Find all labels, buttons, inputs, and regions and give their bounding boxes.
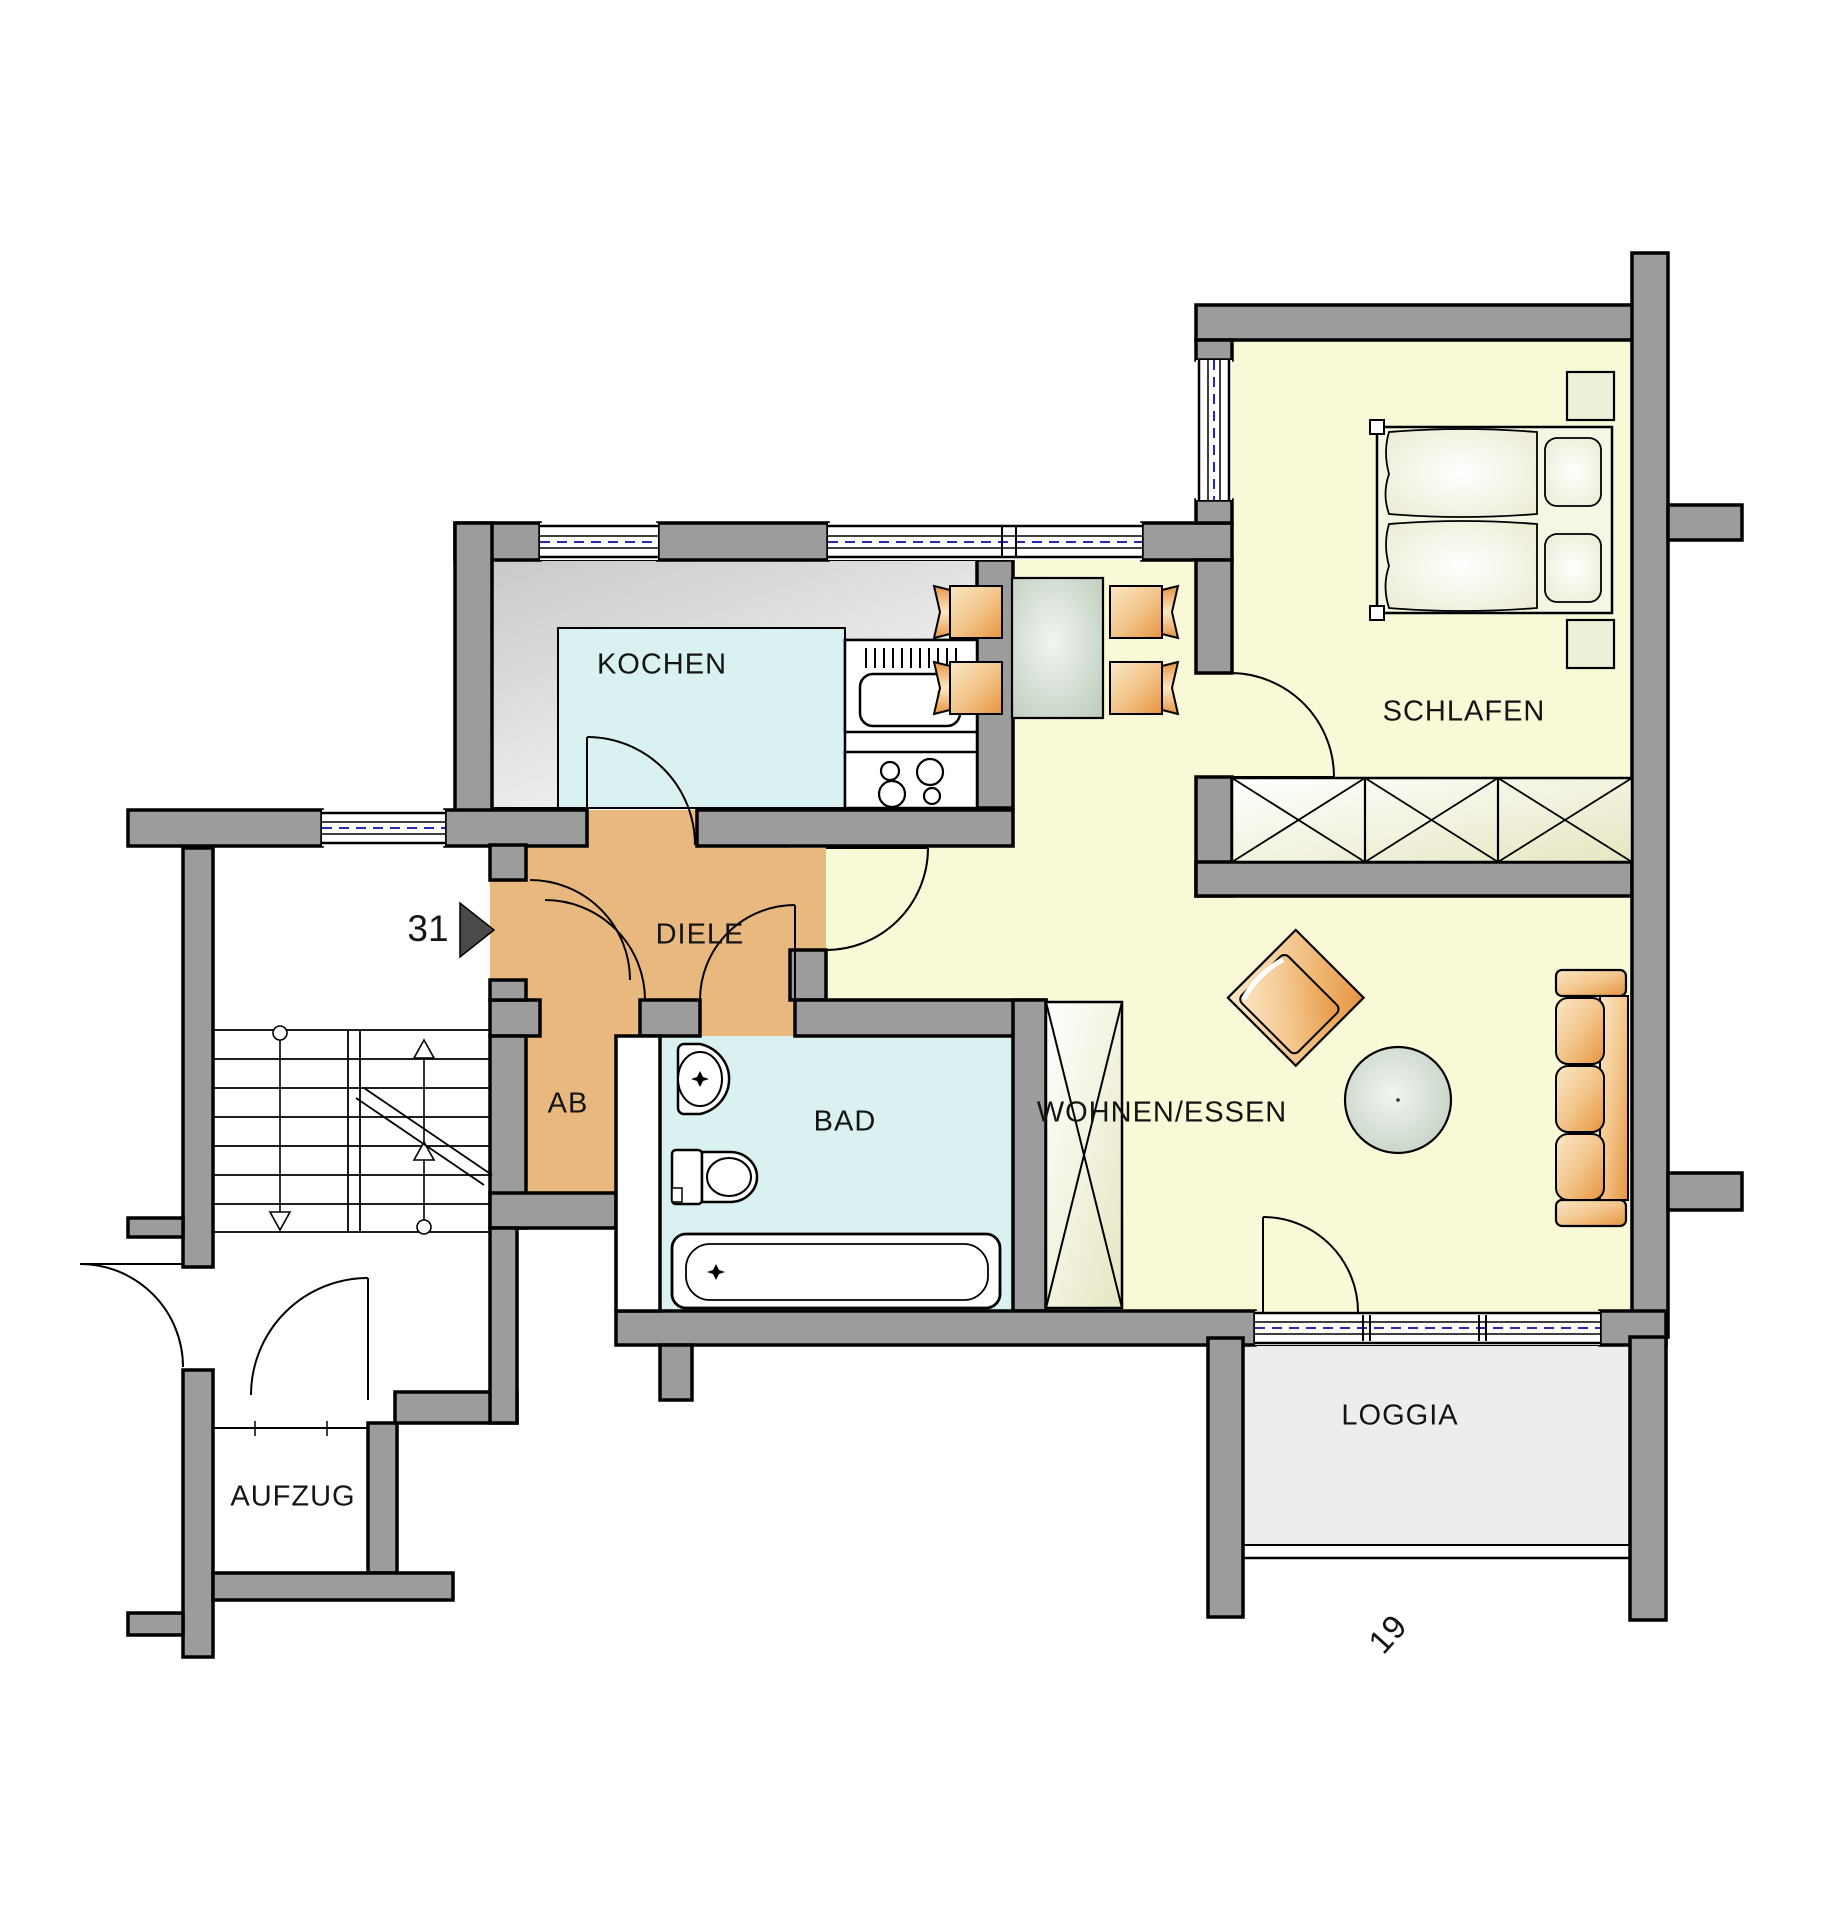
room-label-loggia: LOGGIA <box>1341 1400 1458 1433</box>
floor-plan: KOCHEN DIELE AB BAD WOHNEN/ESSEN SCHLAFE… <box>0 0 1824 1920</box>
wall <box>616 1311 1255 1345</box>
wall <box>128 1613 183 1635</box>
wall <box>128 810 322 846</box>
wall <box>1196 340 1232 360</box>
wall <box>795 1000 1046 1036</box>
door-lobby <box>251 1278 368 1400</box>
mattress <box>1386 429 1538 517</box>
door-gap <box>490 880 526 980</box>
sofa <box>1556 970 1628 1226</box>
stairs <box>213 1026 492 1234</box>
wall <box>1196 862 1632 896</box>
wall <box>1196 560 1232 673</box>
wall <box>1208 1338 1243 1617</box>
nightstand <box>1567 620 1614 668</box>
wall <box>658 523 828 560</box>
room-label-bad: BAD <box>814 1106 877 1139</box>
window-loggia-band <box>1255 1311 1600 1345</box>
wall <box>490 980 526 1000</box>
window-stairwell <box>322 810 445 846</box>
toilet-icon <box>672 1150 757 1204</box>
wall <box>660 1345 692 1400</box>
wall <box>640 1000 700 1036</box>
nightstand <box>1567 372 1614 420</box>
wall <box>490 1228 517 1423</box>
room-label-aufzug: AUFZUG <box>230 1481 355 1514</box>
floor-plan-drawing <box>0 0 1824 1920</box>
wall <box>490 1000 540 1036</box>
room-label-kochen: KOCHEN <box>597 649 727 682</box>
sofa-armrest <box>1556 1200 1626 1226</box>
dining-chair <box>934 586 1002 638</box>
pillow <box>1545 438 1601 506</box>
bathtub-icon <box>672 1234 1000 1308</box>
unit-arrow-icon <box>460 903 494 957</box>
door-gap <box>587 810 697 845</box>
duct-column <box>616 1036 660 1311</box>
wall <box>183 1370 213 1657</box>
double-bed <box>1370 420 1612 620</box>
sofa-armrest <box>1556 970 1626 996</box>
door-gap <box>540 1000 640 1036</box>
room-label-diele: DIELE <box>656 919 745 952</box>
wall <box>490 1193 616 1228</box>
wall <box>1142 523 1232 560</box>
wall <box>1196 500 1232 523</box>
wall <box>183 848 213 1267</box>
wohnen-floor <box>826 845 1196 1000</box>
mattress <box>1386 521 1538 611</box>
wall <box>213 1573 453 1600</box>
wall <box>1630 1337 1666 1620</box>
unit-number: 31 <box>407 908 448 950</box>
dining-table <box>1012 578 1103 718</box>
room-label-ab: AB <box>548 1088 589 1121</box>
door-gap <box>700 1000 795 1036</box>
window-dining <box>828 523 1142 560</box>
room-label-schlafen: SCHLAFEN <box>1383 696 1546 729</box>
pillow <box>1545 534 1601 602</box>
dining-chair <box>1110 662 1178 714</box>
wall <box>1632 253 1668 1337</box>
wall <box>1668 1173 1742 1210</box>
tall-cupboard <box>1046 1002 1122 1308</box>
wall <box>455 523 492 845</box>
table-center-dot <box>1396 1098 1400 1102</box>
wall <box>697 810 1013 846</box>
window-kitchen <box>540 523 658 560</box>
elevator <box>213 1421 368 1436</box>
stair-guide-down <box>270 1026 290 1230</box>
room-label-wohnen-essen: WOHNEN/ESSEN <box>1037 1097 1287 1130</box>
sofa-cushion <box>1556 1134 1604 1200</box>
wall <box>128 1218 183 1237</box>
wall <box>1196 305 1656 340</box>
sofa-cushion <box>1556 998 1604 1064</box>
wardrobe <box>1232 778 1632 862</box>
wall <box>1013 1000 1046 1311</box>
door-gap <box>1196 673 1232 777</box>
wall <box>1668 505 1742 540</box>
dining-chair <box>1110 586 1178 638</box>
stove-unit <box>845 752 977 808</box>
door-stairwell-outer <box>80 1264 183 1367</box>
sofa-cushion <box>1556 1066 1604 1132</box>
wall <box>368 1423 397 1573</box>
window-schlafen <box>1196 360 1232 500</box>
loggia-floor <box>1243 1345 1630 1545</box>
dining-chair <box>934 662 1002 714</box>
wall <box>490 845 526 880</box>
wall <box>445 810 587 846</box>
